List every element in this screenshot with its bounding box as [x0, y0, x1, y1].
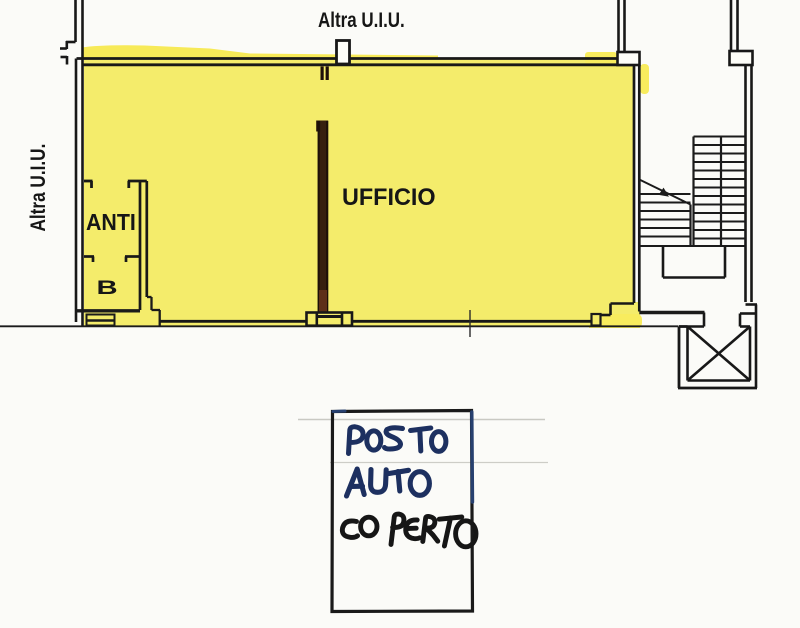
svg-text:Altra U.I.U.: Altra U.I.U.	[318, 8, 405, 32]
svg-text:ANTI: ANTI	[86, 209, 136, 235]
svg-text:B: B	[97, 278, 118, 299]
svg-text:Altra U.I.U.: Altra U.I.U.	[26, 144, 50, 232]
svg-text:UFFICIO: UFFICIO	[342, 185, 436, 211]
